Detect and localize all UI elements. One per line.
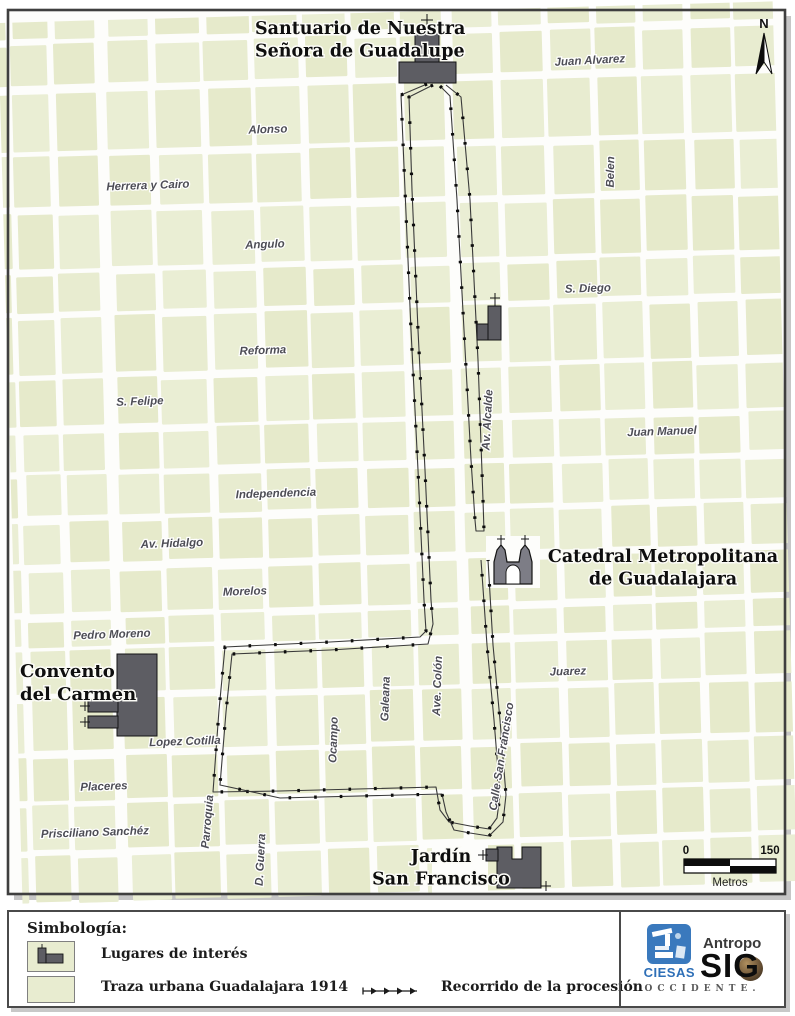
city-block xyxy=(255,86,301,145)
street-label: Reforma xyxy=(239,344,287,358)
city-block xyxy=(402,146,445,197)
city-block xyxy=(19,380,57,427)
city-block xyxy=(412,369,453,416)
city-block xyxy=(163,431,209,469)
city-block xyxy=(205,0,249,34)
city-block xyxy=(748,410,788,450)
city-block xyxy=(559,364,601,412)
city-block xyxy=(659,682,702,734)
city-block xyxy=(652,361,693,409)
city-block xyxy=(227,903,273,908)
city-block xyxy=(660,637,701,678)
city-block xyxy=(709,681,750,733)
city-block xyxy=(501,79,545,138)
city-block xyxy=(111,210,153,266)
city-block xyxy=(312,373,356,419)
city-block xyxy=(471,605,510,634)
city-block xyxy=(309,206,352,262)
city-block xyxy=(107,40,148,83)
city-block xyxy=(164,473,211,513)
city-block xyxy=(56,93,98,152)
city-block xyxy=(735,73,777,132)
city-block xyxy=(202,40,248,81)
city-block xyxy=(519,792,563,837)
city-block xyxy=(221,612,265,641)
city-block xyxy=(265,375,309,421)
city-block xyxy=(457,146,497,197)
city-block xyxy=(268,518,313,558)
city-block xyxy=(315,468,358,509)
street-label: S. Diego xyxy=(565,282,611,296)
city-block xyxy=(213,271,257,309)
city-block xyxy=(365,515,409,556)
city-block xyxy=(657,506,698,547)
legend: Simbología: Lugares de interés Traza urb… xyxy=(7,910,786,1008)
street-label: Juarez xyxy=(549,665,586,678)
city-block xyxy=(278,901,323,908)
city-block xyxy=(359,309,404,366)
city-block xyxy=(738,196,780,251)
city-block xyxy=(114,314,156,372)
city-block xyxy=(520,742,563,787)
city-block xyxy=(562,463,604,503)
city-block xyxy=(611,505,651,547)
city-block xyxy=(547,78,591,137)
city-block xyxy=(460,202,500,257)
city-block xyxy=(409,307,451,364)
city-block xyxy=(362,422,406,461)
city-block xyxy=(60,317,102,374)
city-block xyxy=(276,750,320,794)
city-block xyxy=(512,419,554,458)
street-label: Ave. Colón xyxy=(431,656,445,717)
city-block xyxy=(0,0,6,42)
city-block xyxy=(219,517,264,558)
city-block xyxy=(330,899,372,908)
city-block xyxy=(745,459,787,499)
city-block xyxy=(321,646,364,688)
city-block xyxy=(620,842,660,888)
city-block xyxy=(328,848,371,895)
city-block xyxy=(608,458,648,500)
street-label: Placeres xyxy=(80,780,128,794)
city-block xyxy=(166,567,213,610)
city-block xyxy=(546,0,589,23)
city-block xyxy=(264,310,308,368)
antroposig-logo: CIESAS Antropo SIG OCCIDENTE. xyxy=(619,912,784,1006)
city-block xyxy=(757,785,795,830)
occidente-label: OCCIDENTE. xyxy=(645,984,761,994)
city-block xyxy=(691,27,732,68)
sig-wordmark-with-globe-icon: SIG xyxy=(700,952,760,980)
city-block xyxy=(318,612,362,639)
city-block xyxy=(372,645,415,687)
city-block xyxy=(277,850,322,896)
city-block xyxy=(317,514,360,556)
city-block xyxy=(307,85,350,144)
scale-unit: Metros xyxy=(712,877,747,889)
street-label: Ocampo xyxy=(327,717,341,763)
city-block xyxy=(161,379,208,425)
city-block xyxy=(569,742,611,786)
city-block xyxy=(12,94,50,152)
route-line-icon xyxy=(361,984,419,996)
city-block xyxy=(313,268,355,306)
city-block xyxy=(553,304,597,361)
city-block xyxy=(106,91,149,150)
city-block xyxy=(604,362,645,410)
city-block xyxy=(418,608,459,636)
city-block xyxy=(275,695,319,746)
legend-item-route-label: Recorrido de la procesión xyxy=(441,979,643,995)
city-block xyxy=(130,907,172,908)
city-block xyxy=(222,696,267,748)
city-block xyxy=(613,604,653,631)
city-block xyxy=(29,572,65,614)
landmark-label-santuario: Señora de Guadalupe xyxy=(255,42,465,62)
city-block xyxy=(616,790,657,835)
city-block xyxy=(704,600,746,628)
city-block xyxy=(272,615,316,642)
city-block xyxy=(23,434,59,472)
city-block xyxy=(208,88,252,147)
city-block xyxy=(614,682,655,735)
city-block xyxy=(509,463,554,504)
city-block xyxy=(740,256,782,294)
city-block xyxy=(693,255,736,294)
city-block xyxy=(559,418,602,457)
city-block xyxy=(464,463,505,504)
landmark-label-catedral: de Guadalajara xyxy=(589,570,737,590)
city-block xyxy=(508,366,552,413)
city-block xyxy=(568,793,611,837)
city-block xyxy=(119,570,162,612)
city-block xyxy=(501,145,545,195)
city-block xyxy=(155,42,200,83)
city-block xyxy=(505,202,548,257)
city-block xyxy=(18,320,56,376)
places-of-interest-icon xyxy=(27,941,75,972)
street-label: Angulo xyxy=(244,238,285,251)
city-block xyxy=(264,424,309,464)
city-block xyxy=(699,459,741,499)
city-block xyxy=(645,194,688,251)
city-block xyxy=(317,423,359,463)
city-block xyxy=(28,622,64,648)
city-block xyxy=(32,698,68,751)
city-block xyxy=(653,458,695,499)
city-block xyxy=(58,273,101,312)
city-block xyxy=(119,432,160,470)
city-block xyxy=(372,746,416,791)
scale-end: 150 xyxy=(760,845,779,857)
city-block xyxy=(553,145,595,195)
city-block xyxy=(655,602,697,630)
city-block xyxy=(372,798,416,842)
city-block xyxy=(646,258,689,296)
city-block xyxy=(404,202,447,258)
city-block xyxy=(563,606,605,633)
legend-item-places-label: Lugares de interés xyxy=(101,946,248,962)
city-block xyxy=(499,31,542,73)
legend-title: Simbología: xyxy=(27,919,127,937)
city-block xyxy=(367,468,410,508)
city-block xyxy=(274,800,320,845)
city-block xyxy=(644,139,686,190)
city-block xyxy=(707,740,749,783)
city-block xyxy=(58,156,99,207)
city-block xyxy=(263,267,307,306)
city-block xyxy=(649,303,691,359)
city-block xyxy=(362,371,406,418)
city-block xyxy=(597,76,638,135)
city-block xyxy=(692,195,735,251)
city-block xyxy=(368,610,412,638)
urban-grid-swatch xyxy=(27,976,75,1003)
city-block xyxy=(309,147,351,199)
city-block xyxy=(559,509,603,550)
city-block xyxy=(256,153,302,203)
city-block xyxy=(508,306,551,362)
city-block xyxy=(0,214,13,270)
city-block xyxy=(641,75,684,134)
city-block xyxy=(53,43,95,85)
city-block xyxy=(355,147,399,199)
street-label: Lopez Cotilla xyxy=(149,735,222,750)
city-block xyxy=(179,905,224,908)
city-block xyxy=(274,648,318,690)
city-block xyxy=(600,199,641,254)
city-block xyxy=(268,565,313,607)
city-block xyxy=(642,29,683,69)
street-label: Av. Hidalgo xyxy=(139,537,203,551)
scale-start: 0 xyxy=(683,845,689,857)
city-block xyxy=(353,83,398,142)
city-block xyxy=(13,156,51,207)
city-block xyxy=(696,364,739,410)
city-block xyxy=(23,525,61,565)
city-block xyxy=(452,80,494,139)
city-block xyxy=(208,153,253,203)
city-block xyxy=(690,74,732,133)
city-block xyxy=(697,301,739,357)
city-block xyxy=(497,0,541,26)
city-block xyxy=(213,377,258,423)
city-block xyxy=(71,569,111,612)
city-block xyxy=(356,206,401,261)
city-block xyxy=(740,139,780,189)
city-block xyxy=(155,89,201,148)
city-block xyxy=(62,378,104,425)
city-block xyxy=(172,754,219,797)
ciesas-logo-icon xyxy=(647,924,691,964)
city-block xyxy=(260,205,305,261)
city-block xyxy=(414,421,454,460)
city-block xyxy=(758,834,795,882)
landmark-label-santuario: Santuario de Nuestra xyxy=(255,19,465,39)
landmark-label-jardin: San Francisco xyxy=(372,870,510,890)
city-block xyxy=(69,520,109,562)
street-label: Juan Manuel xyxy=(627,425,698,439)
city-block xyxy=(694,139,735,190)
city-block xyxy=(162,269,206,308)
city-block xyxy=(754,630,794,674)
city-block xyxy=(754,735,795,780)
city-block xyxy=(704,502,745,544)
ciesas-wordmark: CIESAS xyxy=(644,965,695,980)
city-block xyxy=(116,273,156,311)
city-block xyxy=(709,788,751,832)
legend-item-traza-label: Traza urbana Guadalajara 1914 xyxy=(101,979,348,995)
city-block xyxy=(611,639,652,681)
city-block xyxy=(216,425,260,465)
city-block xyxy=(0,275,12,315)
city-block xyxy=(67,474,108,515)
landmark-label-jardin: Jardín xyxy=(409,847,472,867)
city-block xyxy=(602,301,644,358)
city-block xyxy=(16,276,54,314)
city-block xyxy=(571,839,614,887)
city-block xyxy=(324,796,368,842)
city-block xyxy=(746,298,786,355)
street-label: Alonso xyxy=(247,123,287,136)
landmark-label-catedral: Catedral Metropolitana xyxy=(548,547,778,567)
city-block xyxy=(513,608,557,635)
city-block xyxy=(168,614,214,642)
city-block xyxy=(78,857,119,903)
city-block xyxy=(26,474,62,516)
city-block xyxy=(516,688,561,739)
landmark-label-convento: del Carmen xyxy=(20,684,136,705)
city-block xyxy=(754,681,795,732)
city-block xyxy=(126,754,168,798)
city-block xyxy=(616,743,657,786)
city-block xyxy=(35,855,72,902)
city-block xyxy=(421,794,463,839)
city-block xyxy=(318,562,361,605)
city-block xyxy=(310,312,354,368)
city-block xyxy=(174,851,221,898)
city-block xyxy=(753,598,793,626)
street-label: S. Felipe xyxy=(116,395,164,409)
city-block xyxy=(661,739,703,783)
city-block xyxy=(698,416,740,454)
city-block xyxy=(33,758,69,801)
city-block xyxy=(361,264,404,303)
street-label: Belen xyxy=(605,156,618,188)
city-block xyxy=(58,215,100,270)
city-block xyxy=(18,214,55,269)
city-block xyxy=(420,746,462,790)
street-label: Galeana xyxy=(379,676,393,722)
city-block xyxy=(214,313,258,370)
city-block xyxy=(169,646,216,690)
city-block xyxy=(156,210,203,266)
city-block xyxy=(211,210,255,265)
city-block xyxy=(507,263,550,301)
city-block xyxy=(568,687,610,738)
landmark-label-convento: Convento xyxy=(20,661,115,682)
city-block xyxy=(10,45,48,86)
city-block xyxy=(63,433,105,471)
street-label: Morelos xyxy=(223,585,267,599)
city-block xyxy=(162,316,208,372)
city-map: Juan AlvarezAlonsoHerrera y CairoAnguloS… xyxy=(0,0,795,908)
north-label: N xyxy=(759,16,768,31)
city-block xyxy=(0,48,8,89)
city-block xyxy=(553,198,596,254)
city-block xyxy=(118,474,160,515)
city-block xyxy=(595,0,636,24)
city-block xyxy=(745,363,786,409)
city-block xyxy=(367,564,411,606)
city-block xyxy=(37,907,73,908)
city-block xyxy=(662,787,704,833)
city-block xyxy=(704,631,746,675)
